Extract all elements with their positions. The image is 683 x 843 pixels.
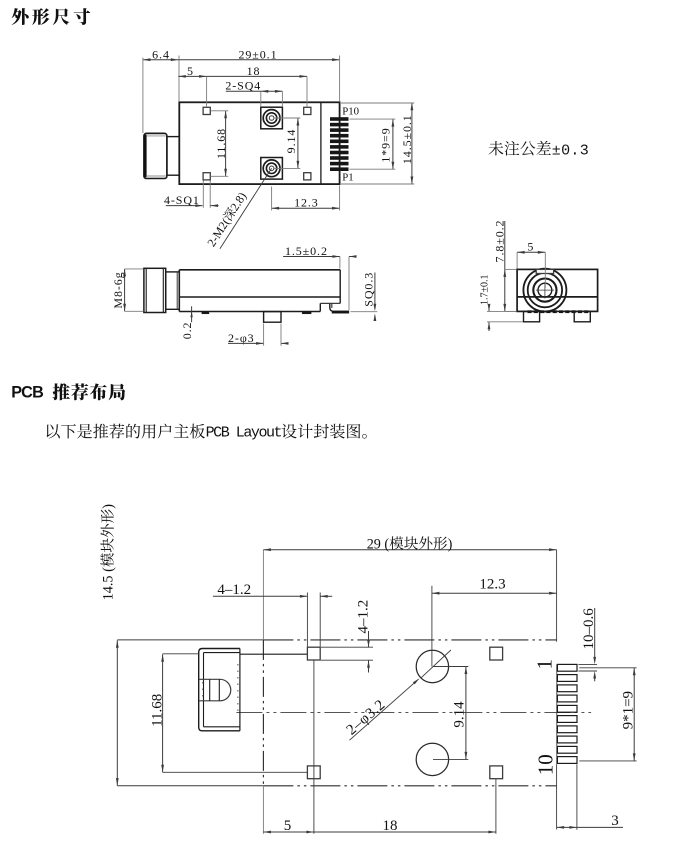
svg-text:3: 3 <box>611 813 619 829</box>
svg-text:P10: P10 <box>342 105 359 117</box>
svg-text:5: 5 <box>527 240 534 254</box>
svg-text:2-SQ4: 2-SQ4 <box>225 78 261 92</box>
svg-text:1.7±0.1: 1.7±0.1 <box>480 274 491 305</box>
svg-text:±0.3: ±0.3 <box>552 142 589 159</box>
svg-text:5: 5 <box>284 818 292 834</box>
svg-text:29 (: 29 ( <box>367 537 390 553</box>
svg-text:9.14: 9.14 <box>451 701 467 728</box>
svg-text:29±0.1: 29±0.1 <box>239 47 278 61</box>
svg-text:1*9=9: 1*9=9 <box>378 127 392 162</box>
svg-text:1.5±0.2: 1.5±0.2 <box>285 244 328 258</box>
svg-text:18: 18 <box>247 64 261 78</box>
svg-text:4–1.2: 4–1.2 <box>217 582 251 598</box>
svg-text:10: 10 <box>534 754 558 775</box>
svg-text:11.68: 11.68 <box>149 694 165 727</box>
svg-text:12.3: 12.3 <box>479 576 505 592</box>
svg-text:9*1=9: 9*1=9 <box>621 691 637 729</box>
svg-text:14.5 (: 14.5 ( <box>101 567 117 600</box>
svg-text:): ) <box>448 537 453 553</box>
svg-text:): ) <box>101 504 117 509</box>
svg-text:4–1.2: 4–1.2 <box>356 600 372 634</box>
svg-text:SQ0.3: SQ0.3 <box>361 272 375 307</box>
svg-text:11.68: 11.68 <box>214 128 228 159</box>
svg-text:7.8±0.2: 7.8±0.2 <box>493 220 507 263</box>
svg-text:9.14: 9.14 <box>284 129 298 154</box>
svg-text:18: 18 <box>383 818 398 834</box>
svg-text:M8-6g: M8-6g <box>111 271 125 308</box>
svg-text:PCB Layout: PCB Layout <box>206 425 282 442</box>
svg-text:PCB: PCB <box>11 384 43 402</box>
svg-text:1: 1 <box>533 659 557 670</box>
svg-text:5: 5 <box>187 64 194 78</box>
svg-text:P1: P1 <box>342 171 353 183</box>
svg-text:14.5±0.1: 14.5±0.1 <box>400 114 414 164</box>
svg-text:6.4: 6.4 <box>152 47 170 61</box>
svg-text:12.3: 12.3 <box>294 196 319 210</box>
svg-text:0.2: 0.2 <box>180 322 194 340</box>
svg-text:4-SQ1: 4-SQ1 <box>164 193 200 207</box>
